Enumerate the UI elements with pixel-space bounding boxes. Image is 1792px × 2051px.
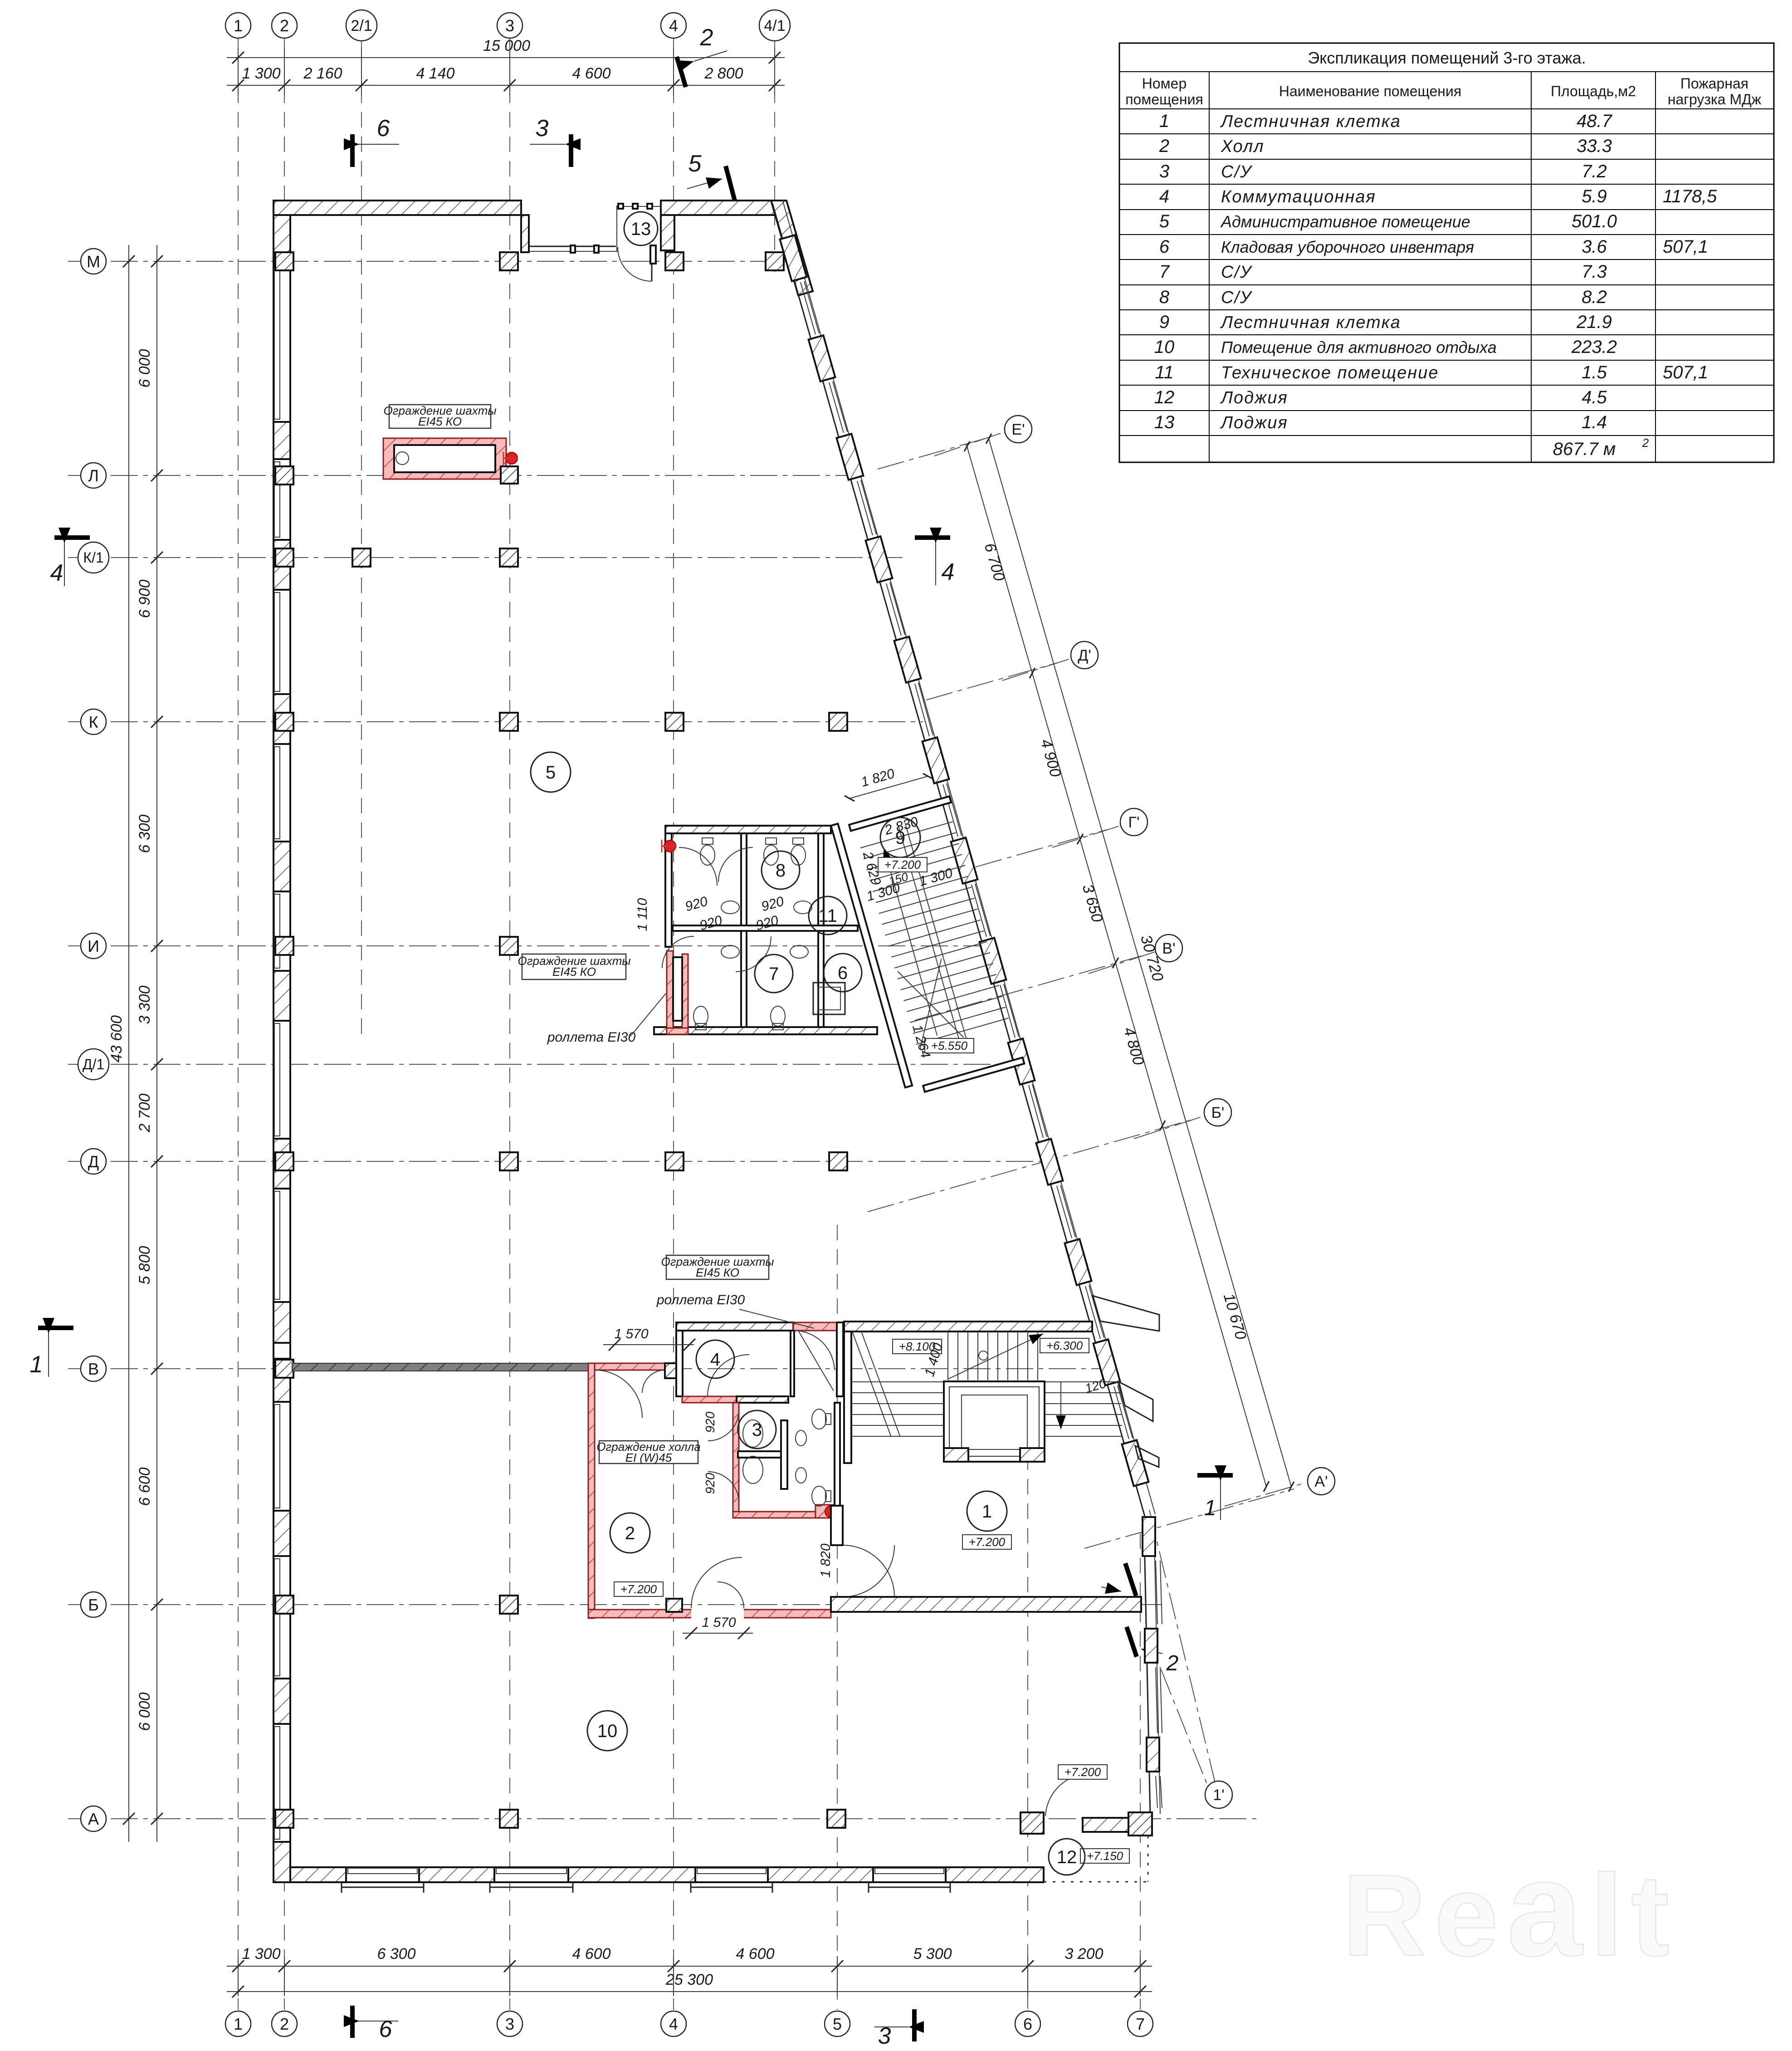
- svg-text:1: 1: [234, 16, 243, 35]
- svg-text:12: 12: [1057, 1847, 1077, 1867]
- svg-text:EI45 КО: EI45 КО: [696, 1266, 739, 1279]
- svg-text:4 600: 4 600: [572, 65, 610, 82]
- svg-text:11: 11: [818, 906, 837, 926]
- svg-text:+7.200: +7.200: [884, 858, 921, 871]
- svg-text:5: 5: [688, 151, 702, 177]
- svg-text:7.3: 7.3: [1582, 262, 1607, 282]
- svg-text:43 600: 43 600: [108, 1015, 125, 1062]
- svg-text:4 600: 4 600: [572, 1945, 610, 1963]
- svg-text:21.9: 21.9: [1576, 312, 1612, 332]
- svg-text:5: 5: [1159, 211, 1170, 231]
- svg-text:6: 6: [838, 963, 848, 983]
- svg-text:3.6: 3.6: [1582, 237, 1607, 257]
- svg-text:3: 3: [505, 16, 514, 35]
- svg-text:507,1: 507,1: [1663, 362, 1708, 382]
- svg-text:4: 4: [50, 560, 63, 586]
- svg-text:С/У: С/У: [1221, 263, 1253, 282]
- svg-text:4: 4: [942, 559, 955, 585]
- svg-text:И: И: [88, 937, 99, 955]
- svg-text:EI (W)45: EI (W)45: [625, 1451, 672, 1464]
- svg-text:3: 3: [878, 2023, 891, 2049]
- svg-text:6: 6: [379, 2016, 392, 2042]
- svg-text:4/1: 4/1: [764, 17, 785, 34]
- svg-text:1: 1: [1204, 1496, 1216, 1520]
- svg-text:7.2: 7.2: [1582, 162, 1607, 181]
- svg-text:12: 12: [1154, 387, 1175, 407]
- svg-text:EI45 КО: EI45 КО: [552, 965, 596, 979]
- svg-text:2 700: 2 700: [136, 1093, 153, 1132]
- svg-text:4: 4: [669, 2015, 678, 2033]
- svg-text:+7.200: +7.200: [969, 1535, 1006, 1549]
- svg-text:2: 2: [625, 1523, 635, 1543]
- svg-text:1 570: 1 570: [702, 1615, 736, 1630]
- svg-text:5.9: 5.9: [1582, 186, 1607, 206]
- svg-text:+7.150: +7.150: [1087, 1849, 1123, 1863]
- svg-text:5 300: 5 300: [913, 1945, 952, 1963]
- svg-text:4: 4: [710, 1350, 720, 1370]
- svg-text:501.0: 501.0: [1572, 211, 1617, 231]
- svg-text:13: 13: [1154, 412, 1175, 432]
- svg-text:6 000: 6 000: [136, 1692, 153, 1731]
- svg-text:4: 4: [669, 16, 678, 35]
- svg-text:В': В': [1162, 940, 1175, 957]
- svg-text:4.5: 4.5: [1582, 387, 1607, 407]
- svg-text:В: В: [88, 1360, 99, 1378]
- svg-text:33.3: 33.3: [1577, 136, 1612, 156]
- svg-text:2: 2: [1166, 1651, 1179, 1675]
- svg-text:6 900: 6 900: [136, 579, 153, 618]
- svg-text:Л: Л: [88, 466, 99, 485]
- svg-text:4: 4: [1159, 186, 1169, 206]
- svg-text:роллета EI30: роллета EI30: [656, 1292, 745, 1307]
- svg-text:2: 2: [700, 24, 713, 51]
- svg-text:2: 2: [1642, 436, 1649, 450]
- svg-text:1: 1: [1159, 111, 1169, 131]
- svg-text:Д': Д': [1078, 647, 1091, 664]
- svg-text:+7.200: +7.200: [620, 1582, 657, 1596]
- svg-text:48.7: 48.7: [1577, 111, 1613, 131]
- svg-text:8: 8: [1159, 287, 1170, 307]
- svg-text:13: 13: [631, 219, 651, 239]
- svg-text:EI45 КО: EI45 КО: [418, 415, 462, 428]
- svg-text:1.5: 1.5: [1582, 362, 1607, 382]
- svg-text:8: 8: [776, 861, 786, 881]
- svg-text:867.7 м: 867.7 м: [1553, 439, 1616, 459]
- svg-text:1: 1: [30, 1351, 43, 1378]
- svg-text:А: А: [88, 1810, 99, 1828]
- svg-text:1 820: 1 820: [818, 1543, 833, 1577]
- svg-text:6 300: 6 300: [136, 814, 153, 853]
- svg-text:223.2: 223.2: [1571, 337, 1617, 357]
- svg-text:А': А': [1314, 1473, 1328, 1490]
- svg-text:Наименование помещения: Наименование помещения: [1279, 83, 1461, 99]
- svg-text:Г': Г': [1128, 814, 1140, 831]
- svg-text:6: 6: [377, 115, 390, 142]
- svg-text:+6.300: +6.300: [1046, 1339, 1083, 1352]
- svg-text:7: 7: [1136, 2015, 1145, 2033]
- svg-text:Лестничная клетка: Лестничная клетка: [1220, 112, 1401, 131]
- svg-text:1': 1': [1213, 1787, 1224, 1804]
- svg-text:роллета EI30: роллета EI30: [547, 1030, 636, 1045]
- svg-text:5: 5: [546, 763, 556, 783]
- svg-text:нагрузка МДж: нагрузка МДж: [1668, 91, 1762, 108]
- svg-text:15 000: 15 000: [483, 37, 530, 54]
- svg-text:9: 9: [1159, 312, 1169, 332]
- svg-text:3 300: 3 300: [136, 985, 153, 1024]
- svg-text:Техническое помещение: Техническое помещение: [1221, 363, 1439, 382]
- svg-text:3: 3: [752, 1420, 762, 1440]
- svg-text:+5.550: +5.550: [931, 1039, 968, 1052]
- svg-text:5 800: 5 800: [136, 1246, 153, 1284]
- svg-text:Лоджия: Лоджия: [1220, 388, 1288, 407]
- svg-text:Д/1: Д/1: [83, 1056, 104, 1072]
- svg-text:6 300: 6 300: [377, 1945, 415, 1963]
- svg-text:1 300: 1 300: [242, 65, 280, 82]
- svg-text:Кладовая уборочного инвентаря: Кладовая уборочного инвентаря: [1221, 238, 1474, 256]
- svg-text:10: 10: [1154, 337, 1175, 357]
- svg-text:Номер: Номер: [1142, 75, 1187, 92]
- svg-text:1: 1: [234, 2015, 243, 2033]
- svg-text:2: 2: [280, 2015, 289, 2033]
- svg-text:10: 10: [597, 1721, 618, 1741]
- svg-text:4 600: 4 600: [736, 1945, 774, 1963]
- svg-text:2/1: 2/1: [351, 17, 372, 34]
- svg-text:1.4: 1.4: [1582, 412, 1607, 432]
- svg-text:3: 3: [505, 2015, 514, 2033]
- svg-text:Е': Е': [1011, 421, 1025, 438]
- svg-text:1178,5: 1178,5: [1663, 186, 1717, 206]
- svg-text:Realt: Realt: [1343, 1832, 1678, 1984]
- svg-text:Д: Д: [88, 1152, 99, 1171]
- svg-text:2 800: 2 800: [704, 65, 743, 82]
- svg-text:С/У: С/У: [1221, 162, 1253, 181]
- svg-text:920: 920: [703, 1411, 717, 1433]
- svg-text:1 110: 1 110: [635, 898, 650, 931]
- svg-text:2 160: 2 160: [303, 65, 342, 82]
- svg-text:11: 11: [1155, 362, 1174, 382]
- svg-text:6: 6: [1159, 237, 1170, 257]
- svg-text:3: 3: [536, 115, 549, 142]
- svg-text:Административное помещение: Административное помещение: [1220, 212, 1470, 231]
- svg-text:8.2: 8.2: [1582, 287, 1607, 307]
- svg-text:Экспликация помещений 3-го эта: Экспликация помещений 3-го этажа.: [1308, 49, 1586, 67]
- svg-text:Б': Б': [1211, 1104, 1225, 1121]
- svg-text:3: 3: [1159, 162, 1169, 181]
- svg-text:Пожарная: Пожарная: [1680, 75, 1748, 92]
- svg-text:Лоджия: Лоджия: [1220, 413, 1288, 432]
- svg-text:2: 2: [280, 16, 289, 35]
- svg-text:К/1: К/1: [83, 549, 103, 566]
- svg-text:920: 920: [703, 1473, 717, 1494]
- svg-text:Б: Б: [88, 1596, 99, 1614]
- svg-text:помещения: помещения: [1125, 91, 1203, 108]
- svg-text:3 200: 3 200: [1064, 1945, 1103, 1963]
- svg-text:Коммутационная: Коммутационная: [1221, 187, 1376, 206]
- svg-text:М: М: [87, 252, 100, 271]
- svg-text:507,1: 507,1: [1663, 237, 1708, 257]
- svg-text:6: 6: [1023, 2015, 1032, 2033]
- svg-text:7: 7: [1159, 262, 1170, 282]
- svg-text:1 300: 1 300: [242, 1945, 280, 1963]
- svg-text:Площадь,м2: Площадь,м2: [1551, 83, 1636, 99]
- svg-text:Помещение для активного отдыха: Помещение для активного отдыха: [1221, 338, 1497, 357]
- svg-text:1: 1: [982, 1502, 992, 1522]
- svg-text:С/У: С/У: [1221, 288, 1253, 307]
- svg-text:Лестничная клетка: Лестничная клетка: [1220, 313, 1401, 332]
- svg-text:25 300: 25 300: [665, 1971, 713, 1988]
- svg-text:5: 5: [833, 2015, 842, 2033]
- svg-text:Холл: Холл: [1221, 137, 1265, 156]
- svg-text:6 000: 6 000: [136, 349, 153, 387]
- svg-text:4 140: 4 140: [416, 65, 454, 82]
- svg-text:+7.200: +7.200: [1064, 1765, 1101, 1779]
- svg-text:6 600: 6 600: [136, 1467, 153, 1506]
- svg-text:7: 7: [769, 964, 779, 984]
- svg-text:2: 2: [1159, 136, 1169, 156]
- svg-text:К: К: [89, 713, 98, 731]
